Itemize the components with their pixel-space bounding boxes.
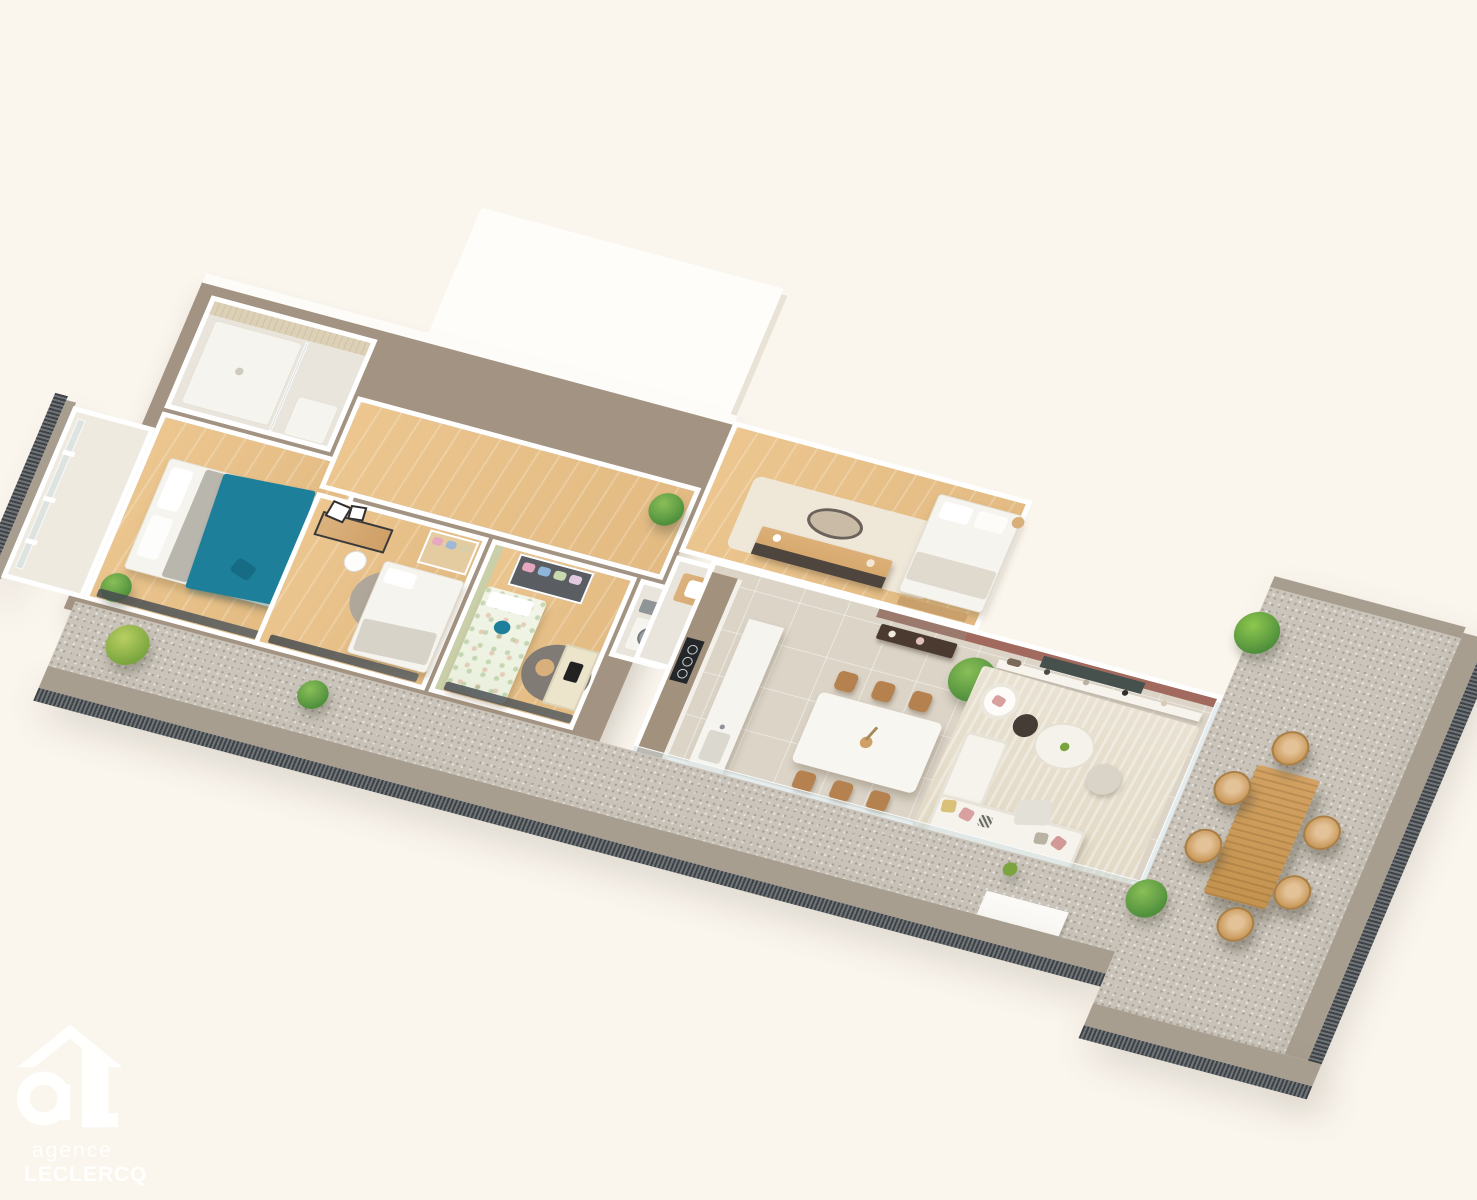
floor-plan-scene: agence LECLERCQ: [0, 0, 1477, 1200]
outdoor-chair: [1266, 727, 1315, 770]
agency-name-line1: agence: [32, 1139, 190, 1163]
folded-clothes: [458, 544, 471, 554]
island-faucet: [719, 724, 726, 730]
shelf-decor: [1160, 700, 1168, 707]
hob-ring: [676, 668, 690, 680]
folded-clothes: [521, 562, 536, 573]
books: [1006, 658, 1022, 668]
folded-clothes: [445, 540, 458, 550]
terrace-bush: [1227, 607, 1287, 659]
dining-chair: [907, 690, 934, 714]
apartment-plan: [0, 270, 1477, 1200]
shelf-decor: [1082, 679, 1090, 686]
balcony-shrub: [292, 677, 333, 712]
wall-frame: [347, 505, 367, 522]
dining-chair: [833, 670, 860, 694]
console-flowers: [915, 636, 926, 645]
agency-name-line2: LECLERCQ: [24, 1163, 190, 1187]
outdoor-chair: [1297, 812, 1346, 855]
sofa-throw: [1013, 800, 1052, 826]
folded-clothes: [431, 536, 444, 546]
balcony-shrub: [99, 620, 156, 670]
agency-logo: agence LECLERCQ: [10, 1022, 190, 1187]
hall-plant: [643, 489, 689, 529]
coffee-table-decor: [1059, 742, 1071, 753]
dining-chair: [870, 680, 897, 704]
wardrobe: [417, 529, 480, 575]
dresser-vase: [771, 533, 782, 542]
hob-ring: [681, 656, 695, 668]
dresser-vase: [865, 558, 876, 567]
shelf-decor: [1121, 689, 1129, 696]
outdoor-chair: [1211, 903, 1260, 946]
hob-ring: [686, 644, 700, 656]
folded-clothes: [537, 566, 552, 577]
folded-clothes: [552, 570, 567, 581]
desk-chair: [340, 548, 370, 574]
island-sink: [697, 729, 731, 764]
console-candle: [887, 630, 897, 638]
shelf-decor: [1043, 668, 1051, 675]
balcony-ball-bush: [1001, 861, 1020, 878]
armchair-cushion: [991, 694, 1007, 708]
desk-keyboard: [563, 661, 584, 683]
folded-clothes: [568, 574, 583, 585]
sofa-cushion-mustard: [940, 799, 957, 813]
agency-house-logo-icon: [10, 1022, 130, 1132]
shower-vanity: [282, 396, 339, 446]
